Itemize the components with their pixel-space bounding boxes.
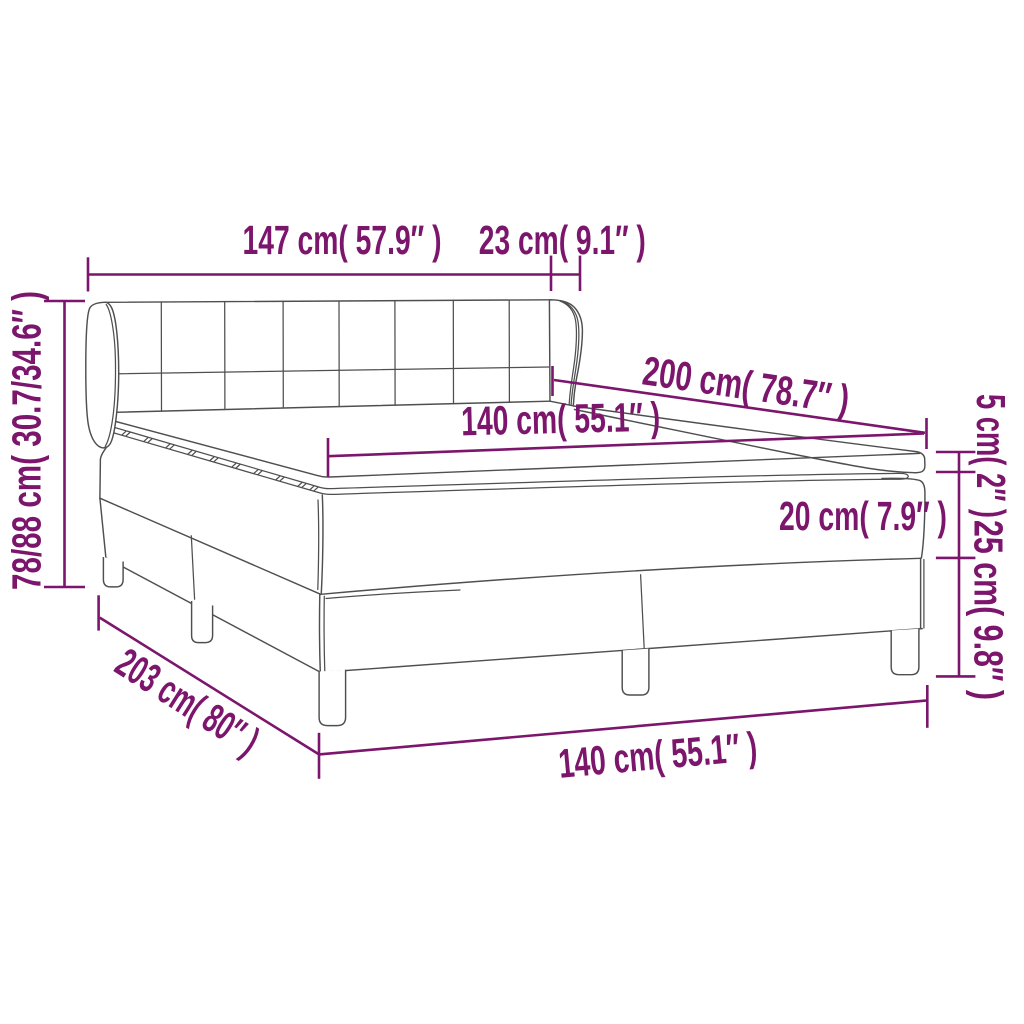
svg-text:78/88 cm( 30.7/34.6″ ): 78/88 cm( 30.7/34.6″ )	[4, 291, 50, 590]
svg-text:5 cm( 2″ ): 5 cm( 2″ )	[968, 394, 1014, 518]
svg-text:25 cm( 9.8″ ): 25 cm( 9.8″ )	[966, 520, 1012, 700]
svg-text:147 cm( 57.9″ ): 147 cm( 57.9″ )	[243, 217, 442, 263]
svg-text:140 cm( 55.1″ ): 140 cm( 55.1″ )	[461, 394, 661, 445]
svg-text:20 cm( 7.9″ ): 20 cm( 7.9″ )	[779, 493, 947, 539]
svg-text:23 cm( 9.1″ ): 23 cm( 9.1″ )	[479, 217, 646, 263]
